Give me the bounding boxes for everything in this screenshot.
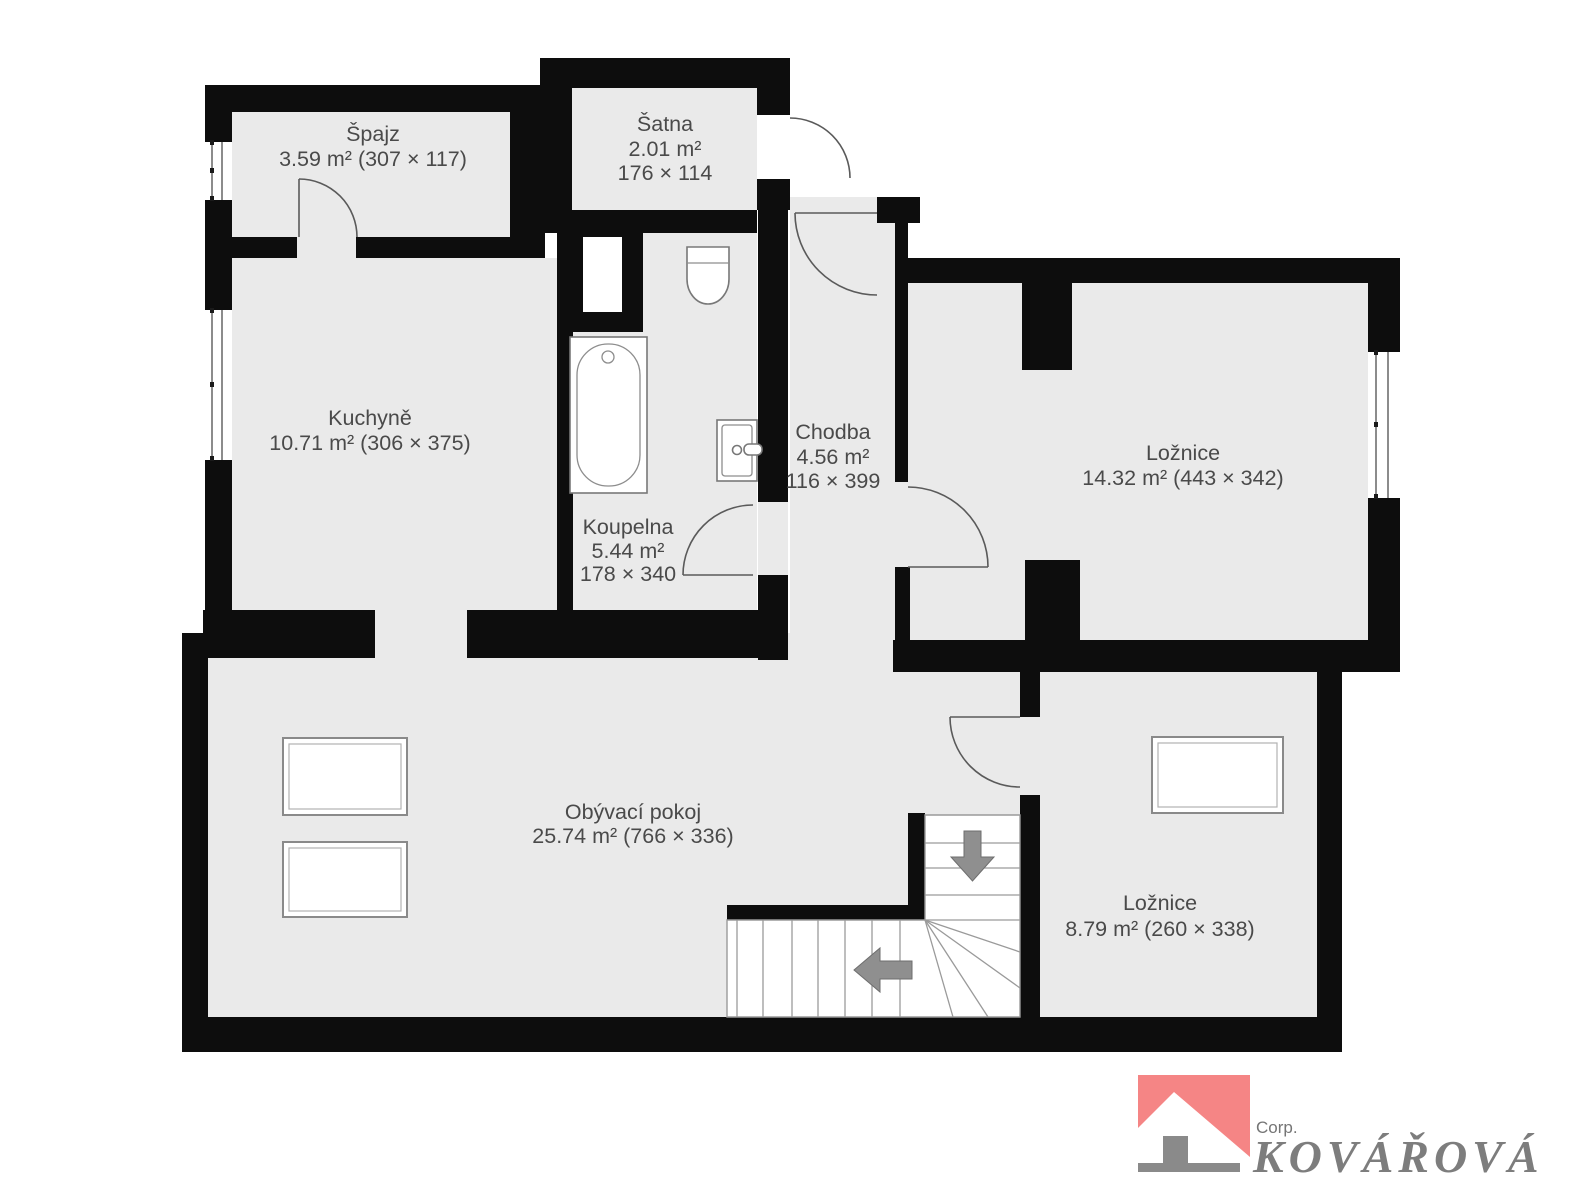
label-koupelna-dims: 178 × 340	[580, 562, 676, 586]
wall-loznice-stub-bottom	[1025, 560, 1080, 642]
wall-loznice-stub-top	[1022, 283, 1072, 370]
label-koupelna-name: Koupelna	[583, 515, 674, 539]
floorplan-drawing: Špajz 3.59 m² (307 × 117) Šatna 2.01 m² …	[0, 0, 1590, 1200]
window-spajz	[205, 140, 232, 201]
wall-chodba-left-upper	[758, 210, 788, 502]
wall-satna-right-upper	[757, 88, 790, 115]
wall-stair-left	[908, 813, 925, 907]
label-kuchyne-name: Kuchyně	[328, 406, 412, 430]
spajz-doorway-floor	[297, 237, 356, 258]
wall-satna-left	[545, 88, 572, 210]
wall-living-top-right	[467, 610, 762, 658]
wall-bottom-outer	[182, 1017, 1342, 1052]
wall-living-top-left	[203, 610, 375, 658]
window-loznice	[1368, 350, 1400, 499]
label-spajz-name: Špajz	[346, 121, 400, 146]
wall-chodba-left-lower	[758, 575, 788, 660]
label-loznice-bottom-name: Ložnice	[1123, 891, 1197, 915]
logo-company-name: KOVÁŘOVÁ	[1252, 1131, 1544, 1182]
label-chodba-dims: 116 × 399	[786, 469, 881, 493]
loznice-bottom-doorway-floor	[1020, 715, 1040, 795]
label-satna-name: Šatna	[637, 111, 693, 136]
roof-window-loznice-bottom	[1152, 737, 1283, 813]
sink-icon	[717, 420, 762, 481]
wall-loznice2-left-lower	[1020, 795, 1040, 1017]
label-koupelna-area: 5.44 m²	[592, 539, 665, 563]
label-obyvaci-area: 25.74 m² (766 × 336)	[532, 824, 733, 848]
wall-left-lower	[205, 458, 232, 612]
shaft-niche	[583, 237, 622, 312]
wall-satna-top	[540, 58, 790, 88]
label-satna-area: 2.01 m²	[629, 137, 702, 161]
label-chodba-area: 4.56 m²	[797, 445, 870, 469]
wall-chodba-right-upper	[895, 223, 908, 482]
wall-stair-top	[727, 905, 925, 920]
loznice-top-doorway-floor	[895, 482, 908, 567]
koupelna-doorway-floor	[758, 502, 788, 575]
wall-entry-block	[877, 197, 920, 223]
kuchyne-doorway-floor	[375, 610, 467, 658]
label-satna-dims: 176 × 114	[618, 161, 713, 185]
wall-loznice2-left-upper	[1020, 660, 1040, 717]
roof-window-living-2	[283, 842, 407, 917]
toilet-icon	[687, 247, 729, 304]
wall-kuchyne-top-left	[205, 237, 297, 258]
wall-kuchyne-top-right	[356, 237, 545, 258]
wall-loznice2-right	[1317, 660, 1342, 1050]
wall-right-upper	[1368, 258, 1400, 352]
bathtub-icon	[570, 337, 647, 493]
label-obyvaci-name: Obývací pokoj	[565, 800, 701, 824]
label-loznice-top-name: Ložnice	[1146, 441, 1220, 465]
label-kuchyne-area: 10.71 m² (306 × 375)	[269, 431, 470, 455]
wall-left-corner	[205, 85, 232, 145]
company-logo: Corp. KOVÁŘOVÁ	[1138, 1075, 1544, 1182]
wall-loznice-top	[908, 258, 1400, 283]
label-loznice-bottom-area: 8.79 m² (260 × 338)	[1065, 917, 1254, 941]
label-spajz-area: 3.59 m² (307 × 117)	[279, 147, 467, 171]
wall-spajz-top	[205, 85, 545, 112]
room-loznice-top-floor	[908, 283, 1368, 640]
wall-spajz-satna-divider	[510, 112, 545, 237]
logo-base-bar	[1138, 1163, 1240, 1172]
floorplan-page: Špajz 3.59 m² (307 × 117) Šatna 2.01 m² …	[0, 0, 1590, 1200]
window-kuchyne	[205, 308, 232, 461]
label-loznice-top-area: 14.32 m² (443 × 342)	[1082, 466, 1283, 490]
label-chodba-name: Chodba	[795, 420, 870, 444]
wall-satna-right-lower	[757, 179, 790, 210]
door-entrance	[790, 118, 850, 178]
wall-living-left	[182, 633, 208, 1017]
roof-window-living-1	[283, 738, 407, 815]
room-loznice-bottom-floor	[1040, 672, 1317, 1017]
